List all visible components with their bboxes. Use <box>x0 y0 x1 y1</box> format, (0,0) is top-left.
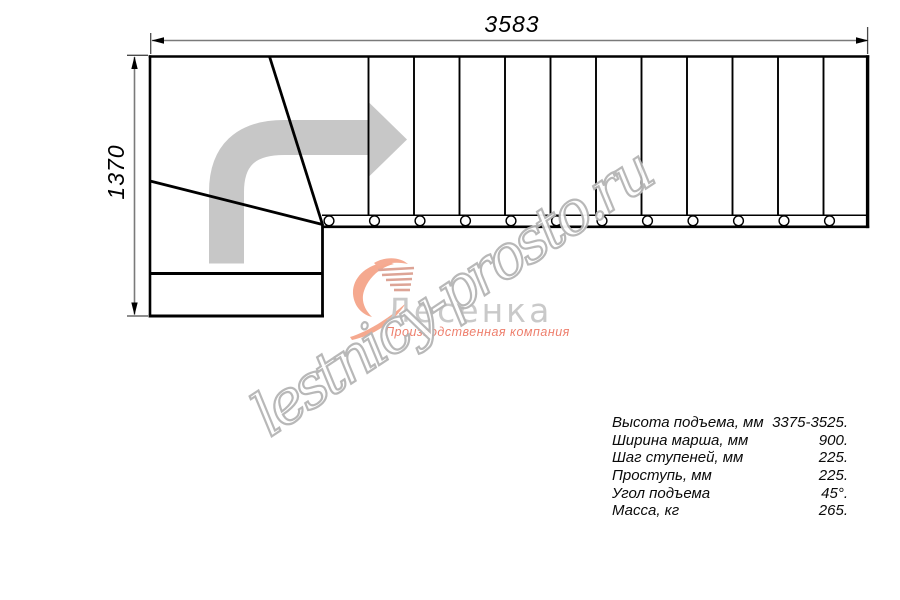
spec-value: 3375-3525. <box>772 414 848 432</box>
tread-lines <box>369 57 824 216</box>
baluster-circle <box>688 216 698 226</box>
specifications-table: Высота подъема, мм 3375-3525. Ширина мар… <box>612 414 848 520</box>
baluster-circle <box>643 216 653 226</box>
baluster-circle <box>370 216 380 226</box>
dim-arrow-right <box>856 37 869 43</box>
dim-arrow-left <box>152 37 165 43</box>
spec-row: Ширина марша, мм 900. <box>612 432 848 450</box>
baluster-circles <box>324 216 834 226</box>
spec-label: Угол подъема <box>612 485 710 503</box>
stair-drawing-page: 3583 1370 Лесенка Производственная компа… <box>0 0 900 600</box>
spec-row: Масса, кг 265. <box>612 502 848 520</box>
logo-speed-lines <box>378 268 414 290</box>
baluster-circle <box>597 216 607 226</box>
baluster-circle <box>825 216 835 226</box>
spec-value: 265. <box>819 502 848 520</box>
spec-label: Высота подъема, мм <box>612 414 764 432</box>
dim-arrow-up <box>131 56 137 69</box>
spec-label: Ширина марша, мм <box>612 432 748 450</box>
spec-value: 225. <box>819 467 848 485</box>
baluster-circle <box>461 216 471 226</box>
baluster-circle <box>324 216 334 226</box>
dim-arrow-down <box>131 303 137 316</box>
baluster-circle <box>734 216 744 226</box>
spec-row: Шаг ступеней, мм 225. <box>612 449 848 467</box>
baluster-circle <box>415 216 425 226</box>
direction-arrow <box>227 102 408 264</box>
spec-row: Высота подъема, мм 3375-3525. <box>612 414 848 432</box>
spec-value: 45°. <box>821 485 848 503</box>
direction-arrow-shaft <box>227 138 370 264</box>
spec-label: Шаг ступеней, мм <box>612 449 743 467</box>
spec-row: Угол подъема 45°. <box>612 485 848 503</box>
logo-tagline: Производственная компания <box>385 325 570 339</box>
spec-label: Проступь, мм <box>612 467 712 485</box>
baluster-circle <box>506 216 516 226</box>
baluster-circle <box>779 216 789 226</box>
spec-value: 225. <box>819 449 848 467</box>
dimension-width-label: 3583 <box>462 11 562 38</box>
baluster-circle <box>552 216 562 226</box>
direction-arrowhead <box>368 102 407 178</box>
staircase-outline <box>149 55 870 317</box>
spec-row: Проступь, мм 225. <box>612 467 848 485</box>
company-logo: Лесенка Производственная компания <box>344 253 419 346</box>
logo-swoosh-tip <box>374 258 408 267</box>
spec-label: Масса, кг <box>612 502 679 520</box>
spec-value: 900. <box>819 432 848 450</box>
dimension-height-label: 1370 <box>103 122 129 222</box>
